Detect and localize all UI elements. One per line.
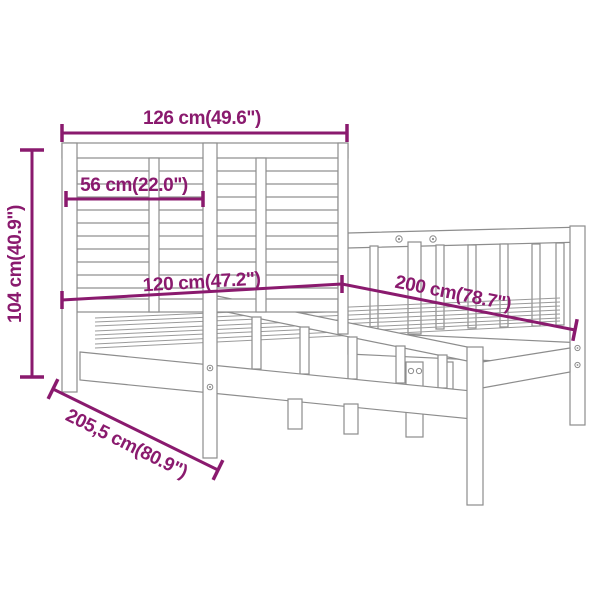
screw-dot-icon bbox=[398, 238, 400, 240]
near-leg bbox=[288, 399, 302, 429]
screw-dot-icon bbox=[432, 238, 434, 240]
headboard-right-post bbox=[338, 143, 348, 334]
near-spindle bbox=[348, 337, 357, 379]
dimension-label: 205,5 cm(80.9") bbox=[62, 405, 191, 483]
bed-frame-sketch: 126 cm(49.6") 56 cm(22.0") 120 cm(47.2")… bbox=[0, 0, 600, 600]
screw-dot-icon bbox=[577, 364, 579, 366]
far-spindle bbox=[532, 244, 540, 326]
screw-dot-icon bbox=[209, 386, 211, 388]
dimension-label: 104 cm(40.9") bbox=[5, 205, 26, 323]
product-dimension-diagram: 126 cm(49.6") 56 cm(22.0") 120 cm(47.2")… bbox=[0, 0, 600, 600]
dimension-height: 104 cm(40.9") bbox=[5, 150, 44, 377]
headboard-center-post bbox=[203, 143, 217, 458]
far-top-rail bbox=[348, 227, 584, 248]
headboard-left-post bbox=[62, 143, 77, 392]
near-foot-post bbox=[467, 347, 483, 505]
near-spindle bbox=[300, 327, 309, 374]
dimension-label: 120 cm(47.2") bbox=[142, 269, 261, 297]
screw-icon bbox=[416, 368, 421, 373]
near-spindle bbox=[438, 355, 447, 388]
screw-dot-icon bbox=[209, 367, 211, 369]
far-spindle bbox=[556, 243, 564, 325]
dimension-tick bbox=[213, 460, 223, 480]
screw-dot-icon bbox=[577, 347, 579, 349]
dimension-tick bbox=[48, 379, 58, 399]
dimension-headboard-width: 126 cm(49.6") bbox=[62, 108, 347, 142]
dimension-label: 126 cm(49.6") bbox=[143, 108, 261, 129]
dimension-total-length: 205,5 cm(80.9") bbox=[48, 379, 223, 483]
screw-icon bbox=[408, 368, 413, 373]
near-spindle bbox=[396, 346, 405, 383]
near-spindle bbox=[252, 317, 261, 369]
dimension-label: 56 cm(22.0") bbox=[80, 175, 188, 196]
near-leg bbox=[344, 404, 358, 434]
